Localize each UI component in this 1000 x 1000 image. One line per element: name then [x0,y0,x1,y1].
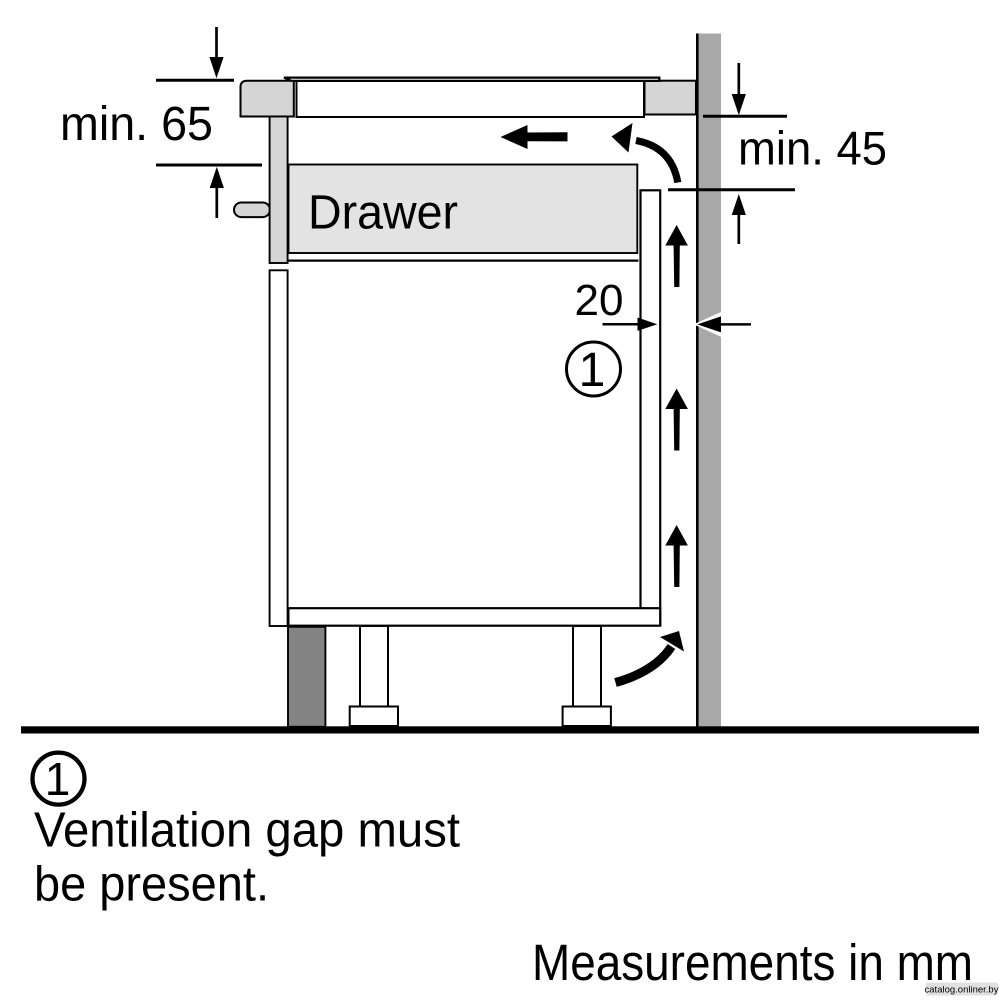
svg-text:be present.: be present. [34,858,269,912]
svg-text:1: 1 [579,344,606,397]
svg-text:catalog.onliner.by: catalog.onliner.by [925,985,999,996]
svg-text:min. 45: min. 45 [738,121,887,174]
svg-text:1: 1 [45,753,71,805]
svg-text:min. 65: min. 65 [60,97,213,151]
svg-text:20: 20 [575,276,624,325]
svg-text:Ventilation gap must: Ventilation gap must [34,804,460,858]
svg-text:Drawer: Drawer [308,187,458,240]
svg-text:Measurements in mm: Measurements in mm [532,934,973,991]
